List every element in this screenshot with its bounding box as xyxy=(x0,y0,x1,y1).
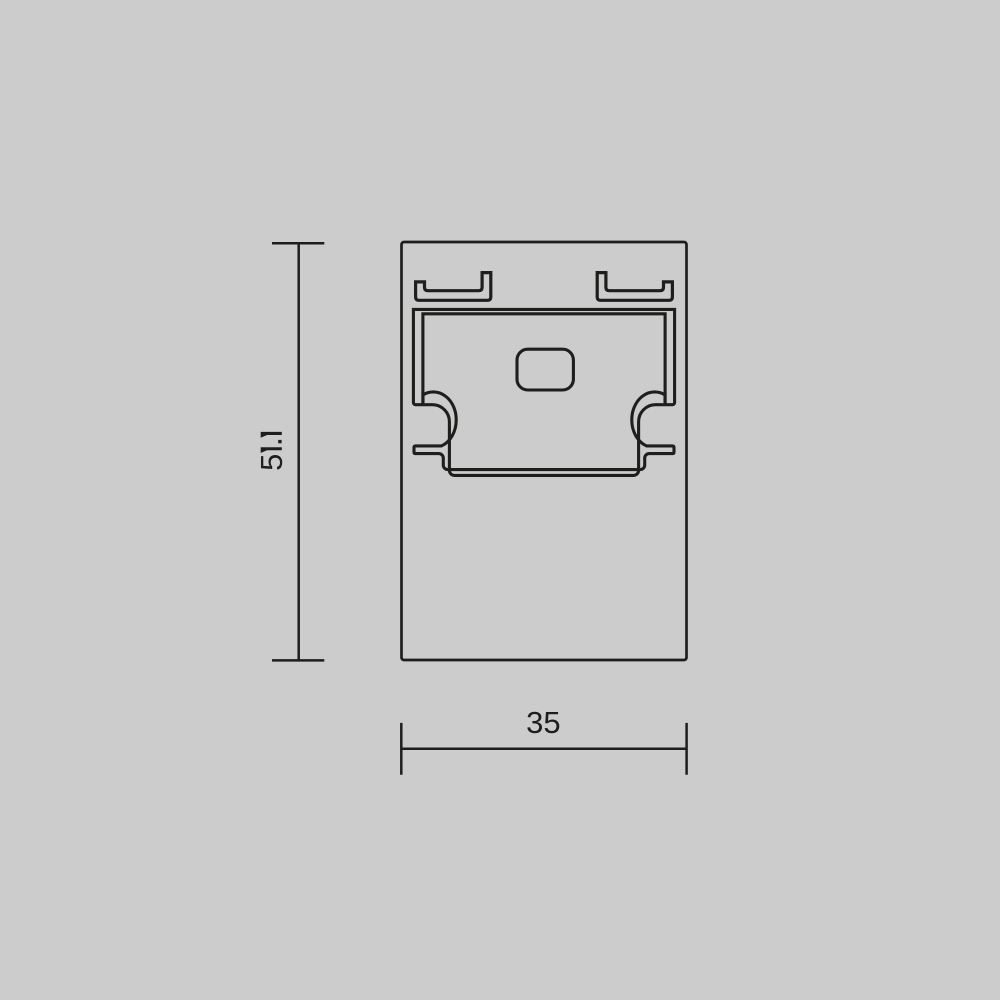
svg-text:5: 5 xyxy=(254,454,289,471)
svg-text:35: 35 xyxy=(526,705,560,740)
